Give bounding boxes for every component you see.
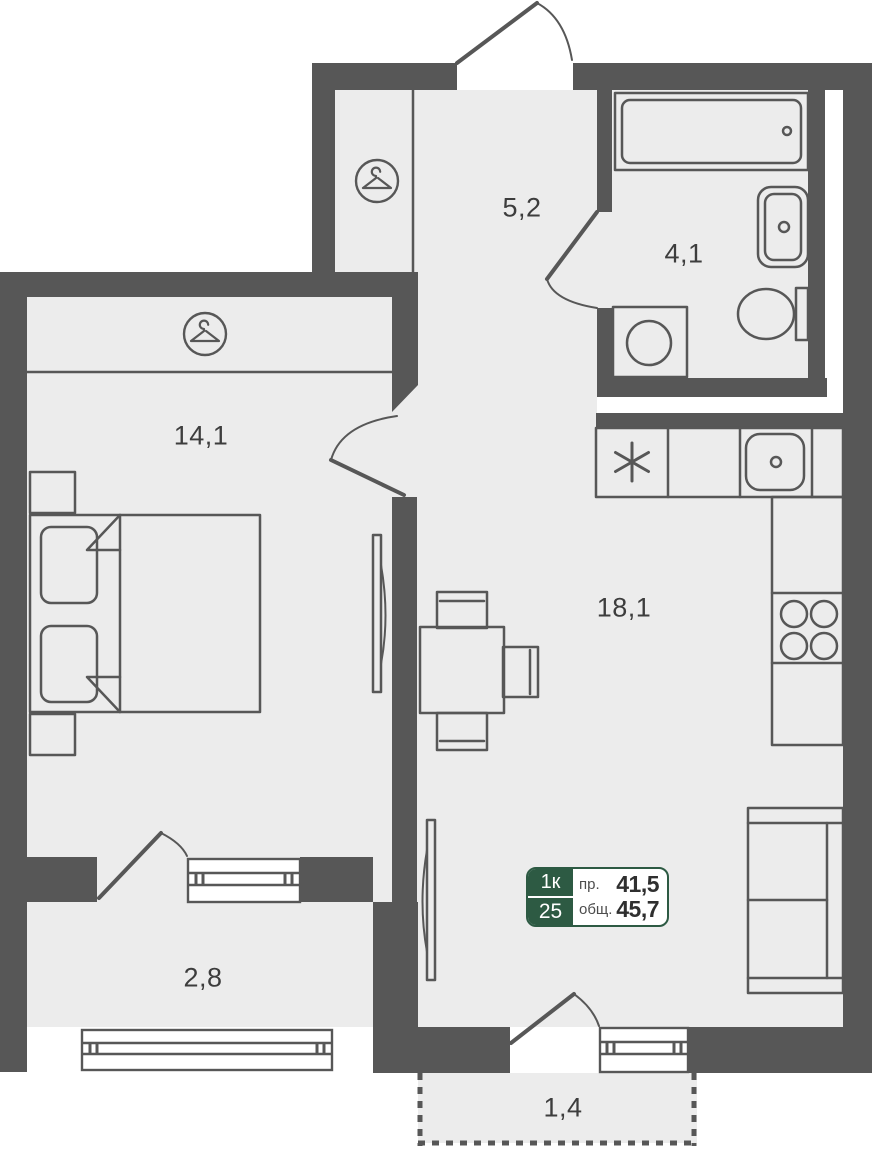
badge-project-area-row: пр. 41,5 (579, 873, 659, 896)
bedroom-floor (0, 272, 418, 902)
floorplan: 5,2 4,1 14,1 18,1 2,8 1,4 1к 25 пр. 41,5… (0, 0, 872, 1150)
badge-total-area-row: общ. 45,7 (579, 898, 659, 921)
badge-project-area-label: пр. (579, 877, 600, 892)
floorplan-drawing (0, 0, 872, 1150)
vent-shaft (825, 90, 843, 413)
badge-rooms-count: 1к (528, 869, 573, 896)
badge-left-column: 1к 25 (528, 869, 573, 925)
badge-total-area-label: общ. (579, 902, 612, 917)
bathroom-floor (597, 90, 843, 397)
room-label-porch: 1,4 (543, 1093, 582, 1124)
floor-layer (0, 90, 843, 1143)
room-label-bedroom: 14,1 (174, 421, 229, 452)
bedroom-balcony-window (188, 859, 300, 902)
room-label-hallway: 5,2 (502, 193, 541, 224)
badge-total-area-value: 45,7 (616, 898, 659, 921)
apartment-badge[interactable]: 1к 25 пр. 41,5 общ. 45,7 (526, 867, 669, 927)
entry-door (457, 3, 572, 63)
room-label-kitchen-living: 18,1 (597, 593, 652, 624)
balcony-window (82, 1030, 332, 1070)
room-label-balcony: 2,8 (183, 963, 222, 994)
badge-project-area-value: 41,5 (616, 873, 659, 896)
entry-opening (457, 63, 573, 90)
shaft-gap (597, 397, 843, 413)
living-window (600, 1028, 688, 1072)
room-label-bathroom: 4,1 (664, 239, 703, 270)
badge-areas: пр. 41,5 общ. 45,7 (573, 869, 667, 925)
badge-apartment-number: 25 (528, 896, 573, 925)
